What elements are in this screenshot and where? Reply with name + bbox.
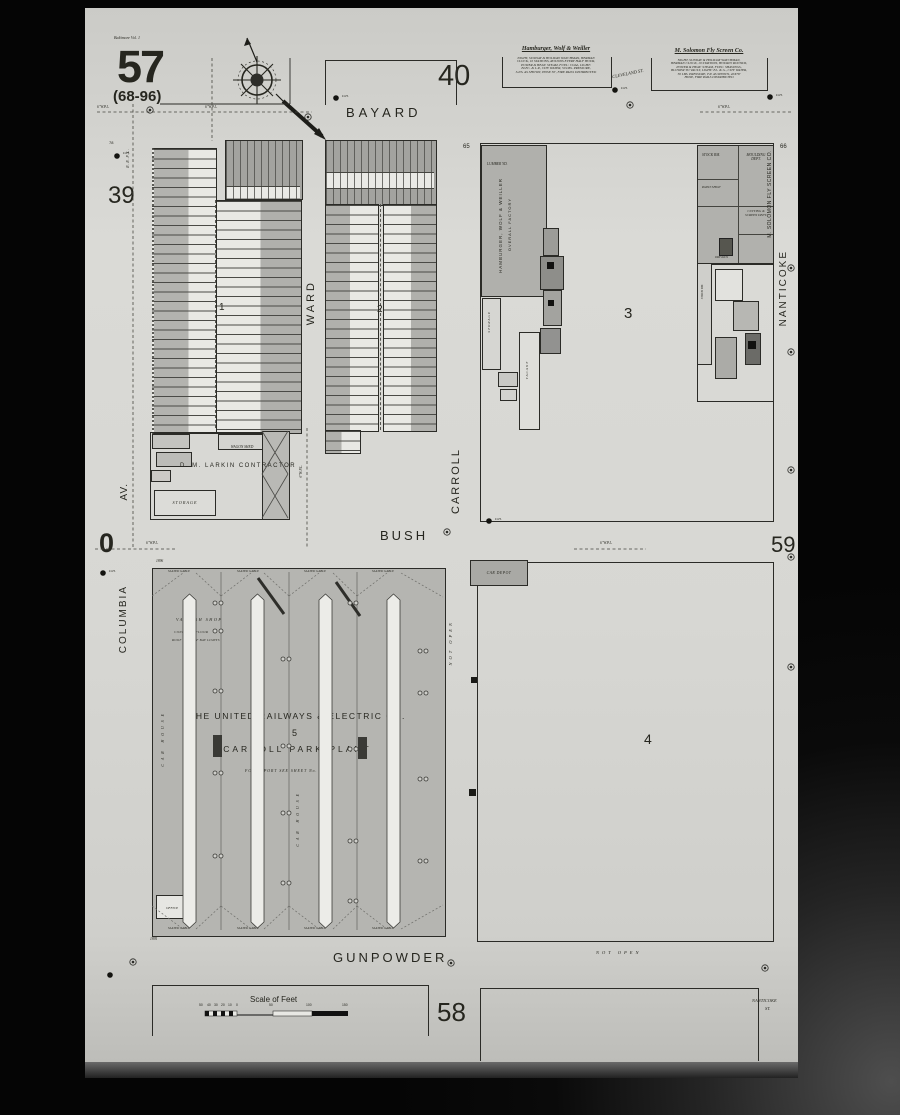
solomon-match-bracket (651, 58, 768, 91)
hydrant-label: D.H. (776, 94, 783, 97)
solomon-title: M. Solomon Fly Screen Co. (675, 48, 744, 54)
storage-label: STORAGE (488, 311, 491, 333)
street-label-gunpowder: GUNPOWDER (333, 951, 447, 964)
scale-tick: 150 (342, 1004, 348, 1007)
bottom-right-parcel (480, 988, 759, 1061)
pipe-label: 6''W.P.L. (600, 542, 612, 546)
paint-shop-label: PAINT SHOP (702, 186, 720, 189)
block3-number: 3 (624, 306, 632, 321)
bottom-left-parcel (152, 985, 429, 1036)
street-label-nanticoke: NANTICOKE (779, 250, 789, 326)
car-depot-building: CAR DEPOT (470, 560, 528, 586)
storage-label: STORAGE (172, 500, 197, 505)
pipe-label: 6''W.P.L. (300, 465, 304, 477)
slated-gable-label: SLATED GABLE (372, 570, 394, 573)
frame-building-x-braced (262, 431, 290, 520)
corner-number-65: 65 (463, 144, 470, 150)
block1-west-row-houses (152, 148, 217, 434)
moulding-dept-label: MOULDING DEPT. (742, 153, 770, 161)
street-label-not-open-horizontal: NOT OPEN (596, 951, 642, 956)
scale-tick: 50 (199, 1004, 203, 1007)
dimension-bottom: 1895 (150, 938, 157, 942)
hydrant-label: D.H. (342, 95, 349, 98)
street-label-bayard: BAYARD (346, 106, 422, 119)
storage-narrow-building: STORAGE (482, 298, 501, 370)
street-label-not-open-vertical: NOT OPEN (449, 620, 454, 666)
scanned-map-page: Baltimore Vol. 1 57 (68-96) 40 39 0 59 5… (0, 0, 900, 1115)
storage-building: STORAGE (154, 490, 216, 516)
pipe-label: 6''W.P.L. (205, 106, 217, 110)
street-label-nanticoke-st-2: ST. (765, 1007, 771, 1012)
slated-gable-label: SLATED GABLE (168, 927, 190, 930)
dimension-top: 1896 (156, 560, 163, 564)
solomon-yard: STOCK RM. (697, 263, 774, 402)
block2-south-houses (325, 430, 361, 454)
slated-gable-label: SLATED GABLE (304, 570, 326, 573)
shed (500, 389, 517, 401)
block1-bayard-porch-band (226, 186, 300, 198)
factory-annex (543, 290, 562, 326)
volume-note: Baltimore Vol. 1 (114, 36, 140, 40)
paper-edge-shadow (85, 1062, 798, 1078)
street-label-columbia: COLUMBIA (119, 585, 129, 653)
adjacent-sheet-left-bush: 0 (99, 530, 114, 557)
corner-number-78: 78 (109, 141, 113, 145)
scale-tick: 50 (269, 1004, 273, 1007)
office-building: OFFICE (156, 895, 188, 919)
block4-outline (477, 562, 774, 942)
shed (498, 372, 518, 387)
office-label: OFFICE (166, 906, 178, 910)
stock-room-label: STOCK RM. (702, 154, 720, 158)
scale-tick: 30 (214, 1004, 218, 1007)
street-label-bush: BUSH (380, 529, 428, 542)
lumber-yard-label: LUMBER YD. (487, 163, 508, 167)
scale-tick: 100 (306, 1004, 312, 1007)
solomon-main-building: STOCK RM. MOULDING DEPT. PAINT SHOP CUTT… (697, 145, 774, 265)
dry-kiln-building (719, 238, 733, 256)
yard-building (745, 333, 761, 365)
united-railways-title: THE UNITED RAILWAYS & ELECTRIC CO. (160, 712, 435, 721)
chimney-mark (547, 262, 554, 269)
hydrant-label: D.H. (123, 152, 130, 155)
street-label-carroll: CARROLL (451, 448, 462, 514)
dry-kiln-label: DRY KILN (715, 256, 728, 259)
chimney-mark (548, 300, 554, 306)
sheet-number: 57 (117, 44, 163, 89)
larkin-label: D. M. LARKIN CONTRACTOR (180, 463, 296, 469)
slated-gable-label: SLATED GABLE (237, 570, 259, 573)
solomon-building-name-label: M. SOLOMON FLY SCREEN CO. (768, 150, 773, 238)
block5-number: 5 (292, 729, 297, 738)
sheet-range: (68-96) (113, 89, 161, 104)
slated-gable-label: SLATED GABLE (372, 927, 394, 930)
car-depot-label: CAR DEPOT (487, 571, 512, 575)
interior-wall (698, 179, 738, 180)
small-house (151, 470, 171, 482)
pipe-label: 6''W.P.L. (97, 106, 109, 110)
hamburger-factory-building (481, 145, 547, 297)
wagon-shed-label: WAGON SHED (231, 445, 254, 449)
scale-tick: 0 (236, 1004, 238, 1007)
pipe-label: 6''W.P.L. (146, 542, 158, 546)
yard-building (715, 337, 737, 379)
interior-wall (698, 206, 773, 207)
wagon-shed-building: WAGON SHED (218, 434, 266, 450)
varnish-shop-label: VARNISH SHOP (176, 618, 222, 622)
united-report-note: FOR REPORT SEE SHEET No. 58 (245, 770, 325, 774)
stock-room-label: STOCK RM. (701, 284, 704, 299)
small-house (152, 434, 190, 449)
concrete-floor-label: CONCRETE FLOOR (174, 631, 208, 634)
vacant-narrow-building: VACANT (519, 332, 540, 430)
roof-note-label: ROOF RAILS OF BAY LIGHTS (172, 639, 220, 642)
car-house-label: CAR HOUSE (297, 790, 301, 847)
corner-number-66: 66 (780, 144, 787, 150)
pipe-label: 6''W.P.L. (718, 106, 730, 110)
block2-alley-line (380, 204, 381, 430)
block4-number: 4 (644, 732, 652, 746)
block2-west-row-houses (325, 204, 379, 432)
scale-tick: 40 (207, 1004, 211, 1007)
hamburger-title: Hamburger, Wolf & Weiller (522, 46, 590, 52)
chimney-mark (748, 341, 756, 349)
street-label-columbia-av: AV. (120, 483, 130, 500)
adjacent-sheet-right-bush: 59 (771, 534, 795, 556)
hamburger-match-bracket (502, 57, 612, 88)
block2-bayard-porch-band (326, 172, 434, 189)
slated-gable-label: SLATED GABLE (304, 927, 326, 930)
yard-building (733, 301, 759, 331)
street-label-ward: WARD (306, 280, 317, 325)
adjacent-sheet-left: 39 (108, 184, 135, 208)
block1-east-row-houses (216, 200, 302, 434)
block1-alley-line (215, 200, 216, 428)
block1-number: 1 (219, 303, 225, 313)
factory-name-label: HAMBURGER, WOLF & WEILLER (499, 178, 504, 273)
scale-title: Scale of Feet (250, 996, 297, 1004)
interior-wall (738, 146, 739, 264)
carroll-park-plant-label: CARROLL PARK PLANT (180, 745, 415, 754)
slated-gable-label: SLATED GABLE (237, 927, 259, 930)
scale-tick: 10 (228, 1004, 232, 1007)
adjacent-sheet-bottom: 58 (437, 999, 466, 1025)
hydrant-label: D.H. (621, 87, 628, 90)
stock-strip-building: STOCK RM. (697, 263, 712, 365)
block2-number: 2 (377, 305, 383, 315)
vacant-label: VACANT (526, 361, 529, 379)
block2-east-row-houses (383, 204, 437, 432)
factory-name-label-2: OVERALL FACTORY (508, 198, 512, 251)
slated-gable-label: SLATED GABLE (168, 570, 190, 573)
factory-annex (540, 328, 561, 354)
scale-tick: 20 (221, 1004, 225, 1007)
yard-building (715, 269, 743, 301)
factory-annex (543, 228, 559, 256)
hydrant-label: D.H. (109, 570, 116, 573)
